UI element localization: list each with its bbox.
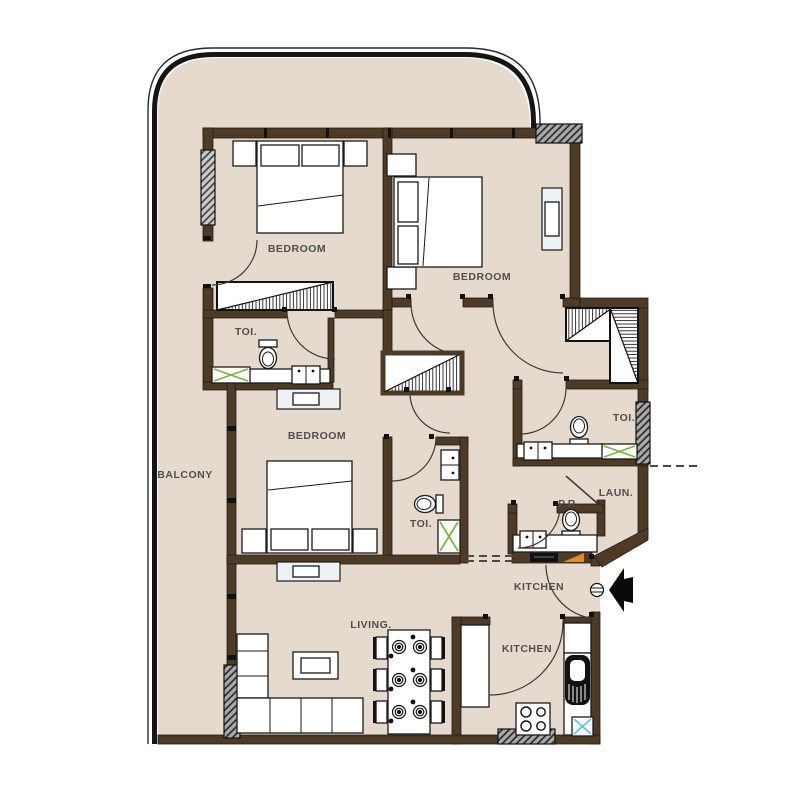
room-label-balcony: BALCONY — [157, 469, 212, 481]
dining-table-icon — [373, 630, 445, 734]
entry-arrow-icon — [609, 568, 633, 612]
toilet1-icon — [259, 340, 277, 369]
sink-toilet3-icon — [517, 442, 603, 460]
entry-symbol-icon — [591, 584, 604, 597]
window-toilet3-icon — [636, 402, 650, 464]
dresser-bedroom2-icon — [542, 188, 562, 250]
shower-toilet1-icon — [212, 367, 250, 383]
room-label-toilet-2: TOI. — [410, 518, 432, 530]
tv-console-living-icon — [277, 562, 340, 581]
shower-toilet2-icon — [438, 520, 460, 553]
floor-drain-kitchen-icon — [572, 717, 593, 736]
room-label-toilet-1: TOI. — [235, 326, 257, 338]
room-label-toilet-3: TOI. — [613, 412, 635, 424]
stove-icon — [516, 703, 550, 735]
tv-console-bedroom3-icon — [277, 389, 340, 409]
room-label-bedroom-2: BEDROOM — [453, 271, 511, 283]
sink-toilet1-icon — [249, 366, 330, 384]
room-label-powder-room: P.R — [558, 498, 576, 510]
window-bedroom1-icon — [201, 150, 215, 225]
floor-plan: BEDROOM BEDROOM BEDROOM TOI. TOI. TOI. B… — [0, 0, 800, 800]
room-label-kitchen: KITCHEN — [502, 643, 552, 655]
room-label-laundry: LAUN. — [599, 487, 634, 499]
room-label-bedroom-3: BEDROOM — [288, 430, 346, 442]
coffee-table-icon — [293, 652, 338, 679]
toilet2-icon — [415, 495, 444, 513]
floor-plan-drawing — [0, 0, 800, 800]
kitchen-sink-icon — [565, 655, 590, 705]
toilet-powder-room-icon — [562, 510, 580, 538]
room-label-bedroom-1: BEDROOM — [268, 243, 326, 255]
window-top-right-icon — [536, 124, 582, 143]
wardrobe-closet-vertical-icon — [610, 308, 638, 383]
room-label-kitchen-hall: KITCHEN — [514, 581, 564, 593]
wardrobe-closet-horizontal-icon — [566, 308, 612, 341]
cabinet-toilet2-icon — [441, 450, 459, 480]
wardrobe-bedroom1-icon — [217, 282, 333, 310]
shower-toilet3-icon — [602, 444, 637, 459]
toilet3-icon — [570, 417, 588, 447]
room-label-living: LIVING. — [350, 619, 391, 631]
